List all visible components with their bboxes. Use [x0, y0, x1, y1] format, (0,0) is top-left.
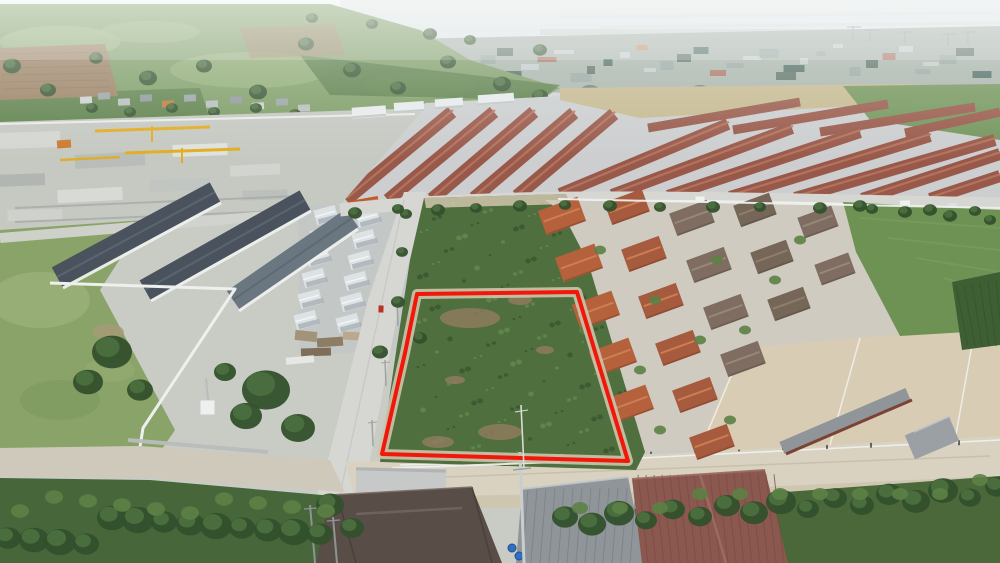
aerial-photo [0, 0, 1000, 563]
car-icon [900, 200, 910, 205]
utility-box [200, 378, 215, 415]
aerial-photo-canvas [0, 0, 1000, 563]
atmospheric-haze [0, 0, 1000, 160]
red-car-icon [378, 305, 383, 312]
